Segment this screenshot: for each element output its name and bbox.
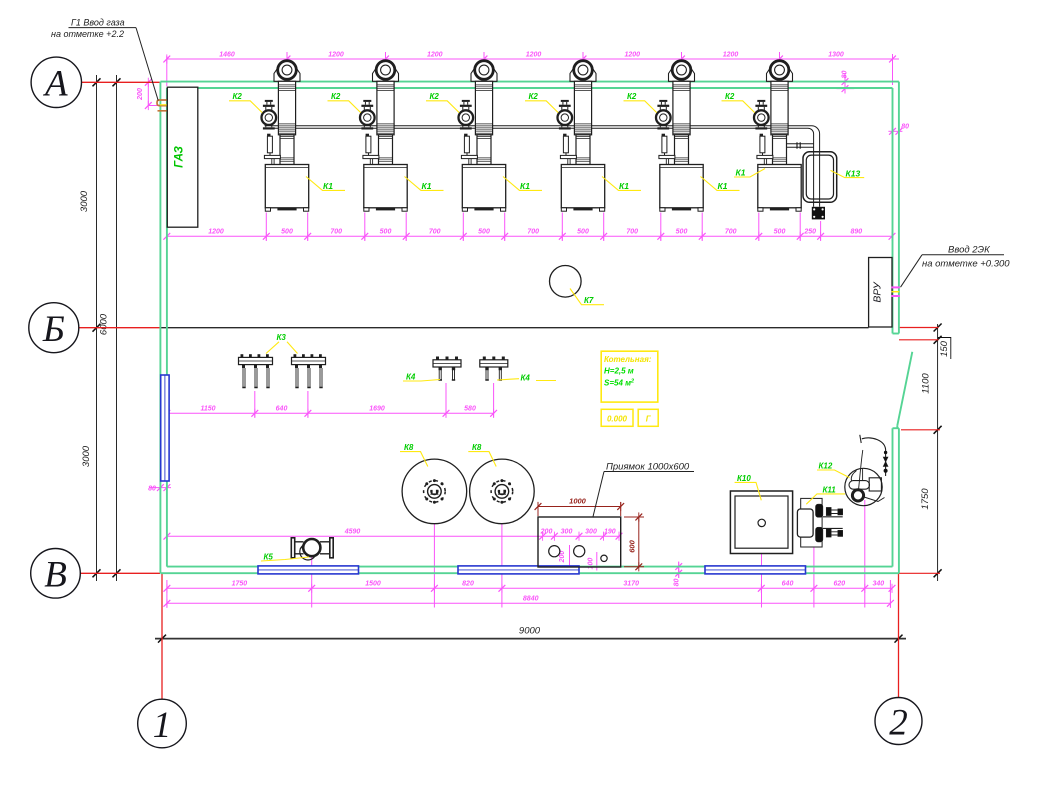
svg-text:Приямок 1000х600: Приямок 1000х600 (606, 461, 690, 472)
svg-text:500: 500 (380, 229, 392, 236)
svg-text:1100: 1100 (921, 373, 932, 394)
svg-text:620: 620 (833, 581, 845, 588)
svg-text:на отметке +0.300: на отметке +0.300 (922, 258, 1010, 269)
svg-text:1750: 1750 (920, 488, 931, 510)
svg-text:80: 80 (674, 579, 681, 587)
svg-text:700: 700 (725, 229, 737, 236)
svg-text:190: 190 (604, 528, 616, 535)
svg-text:340: 340 (872, 581, 884, 588)
svg-text:К2: К2 (725, 92, 735, 101)
svg-text:К2: К2 (233, 92, 243, 101)
svg-text:К12: К12 (819, 461, 833, 470)
svg-text:К2: К2 (627, 92, 637, 101)
svg-text:К13: К13 (846, 169, 861, 179)
svg-text:80: 80 (842, 71, 849, 79)
svg-text:1200: 1200 (723, 51, 739, 58)
svg-text:150: 150 (939, 340, 950, 357)
svg-text:Котельная:: Котельная: (604, 355, 652, 364)
svg-text:1200: 1200 (328, 51, 344, 58)
svg-text:700: 700 (626, 229, 638, 236)
svg-text:1150: 1150 (200, 406, 215, 413)
svg-text:А: А (42, 64, 68, 105)
svg-text:8840: 8840 (523, 596, 539, 603)
svg-text:640: 640 (782, 581, 794, 588)
svg-text:580: 580 (464, 406, 476, 413)
svg-text:0.000: 0.000 (607, 414, 628, 423)
svg-text:К2: К2 (331, 92, 341, 101)
svg-text:890: 890 (850, 229, 862, 236)
svg-text:Г1 Ввод газа: Г1 Ввод газа (71, 17, 125, 27)
svg-text:500: 500 (577, 229, 589, 236)
svg-text:1200: 1200 (427, 51, 443, 58)
svg-text:4590: 4590 (344, 528, 361, 535)
svg-text:К11: К11 (823, 485, 837, 494)
svg-text:на отметке +2.2: на отметке +2.2 (51, 29, 124, 39)
svg-text:К2: К2 (529, 92, 539, 101)
svg-text:250: 250 (803, 229, 816, 236)
svg-text:К1: К1 (520, 181, 530, 191)
svg-text:К4: К4 (521, 374, 531, 383)
svg-text:640: 640 (276, 406, 288, 413)
svg-text:1200: 1200 (526, 51, 542, 58)
svg-text:1500: 1500 (365, 581, 381, 588)
svg-text:700: 700 (527, 229, 539, 236)
svg-text:500: 500 (676, 229, 688, 236)
svg-text:1: 1 (153, 705, 172, 746)
svg-text:В: В (44, 555, 67, 596)
svg-text:6000: 6000 (99, 313, 110, 335)
svg-text:300: 300 (561, 528, 573, 535)
svg-text:S=54 м2: S=54 м2 (604, 378, 634, 387)
svg-text:80: 80 (901, 124, 909, 131)
svg-text:2: 2 (889, 703, 908, 744)
svg-text:ВРУ: ВРУ (872, 281, 884, 303)
svg-text:700: 700 (330, 229, 342, 236)
svg-text:К10: К10 (737, 474, 751, 483)
svg-text:1750: 1750 (232, 581, 248, 588)
svg-text:К8: К8 (404, 443, 414, 452)
svg-text:Н=2,5 м: Н=2,5 м (604, 366, 634, 375)
svg-text:Ввод 2ЭК: Ввод 2ЭК (948, 244, 991, 255)
svg-text:200: 200 (540, 528, 553, 535)
svg-text:К1: К1 (736, 167, 746, 177)
svg-text:3000: 3000 (79, 190, 90, 212)
svg-text:1200: 1200 (208, 229, 224, 236)
svg-text:1690: 1690 (369, 406, 385, 413)
svg-text:3000: 3000 (81, 445, 92, 467)
svg-text:К1: К1 (718, 181, 728, 191)
svg-text:1300: 1300 (828, 51, 844, 58)
svg-text:К4: К4 (406, 372, 416, 381)
svg-text:600: 600 (628, 539, 637, 552)
svg-text:К1: К1 (323, 181, 333, 191)
svg-text:ГАЗ: ГАЗ (174, 146, 186, 168)
svg-text:К5: К5 (264, 552, 274, 561)
svg-text:1460: 1460 (219, 51, 235, 58)
svg-text:К1: К1 (619, 181, 629, 191)
svg-text:1200: 1200 (625, 51, 641, 58)
svg-text:700: 700 (429, 229, 441, 236)
svg-text:300: 300 (585, 528, 597, 535)
svg-text:200: 200 (137, 88, 144, 101)
svg-text:К2: К2 (430, 92, 440, 101)
svg-text:1000: 1000 (569, 496, 587, 505)
svg-text:80: 80 (148, 485, 156, 492)
svg-text:9000: 9000 (519, 625, 541, 636)
svg-text:К7: К7 (584, 296, 594, 305)
svg-text:Б: Б (42, 309, 65, 350)
svg-text:К3: К3 (277, 333, 287, 342)
svg-text:500: 500 (478, 229, 490, 236)
svg-text:3170: 3170 (623, 581, 639, 588)
svg-text:820: 820 (462, 581, 474, 588)
svg-text:500: 500 (774, 229, 786, 236)
svg-text:К8: К8 (472, 443, 482, 452)
svg-text:К1: К1 (422, 181, 432, 191)
svg-text:500: 500 (281, 229, 293, 236)
